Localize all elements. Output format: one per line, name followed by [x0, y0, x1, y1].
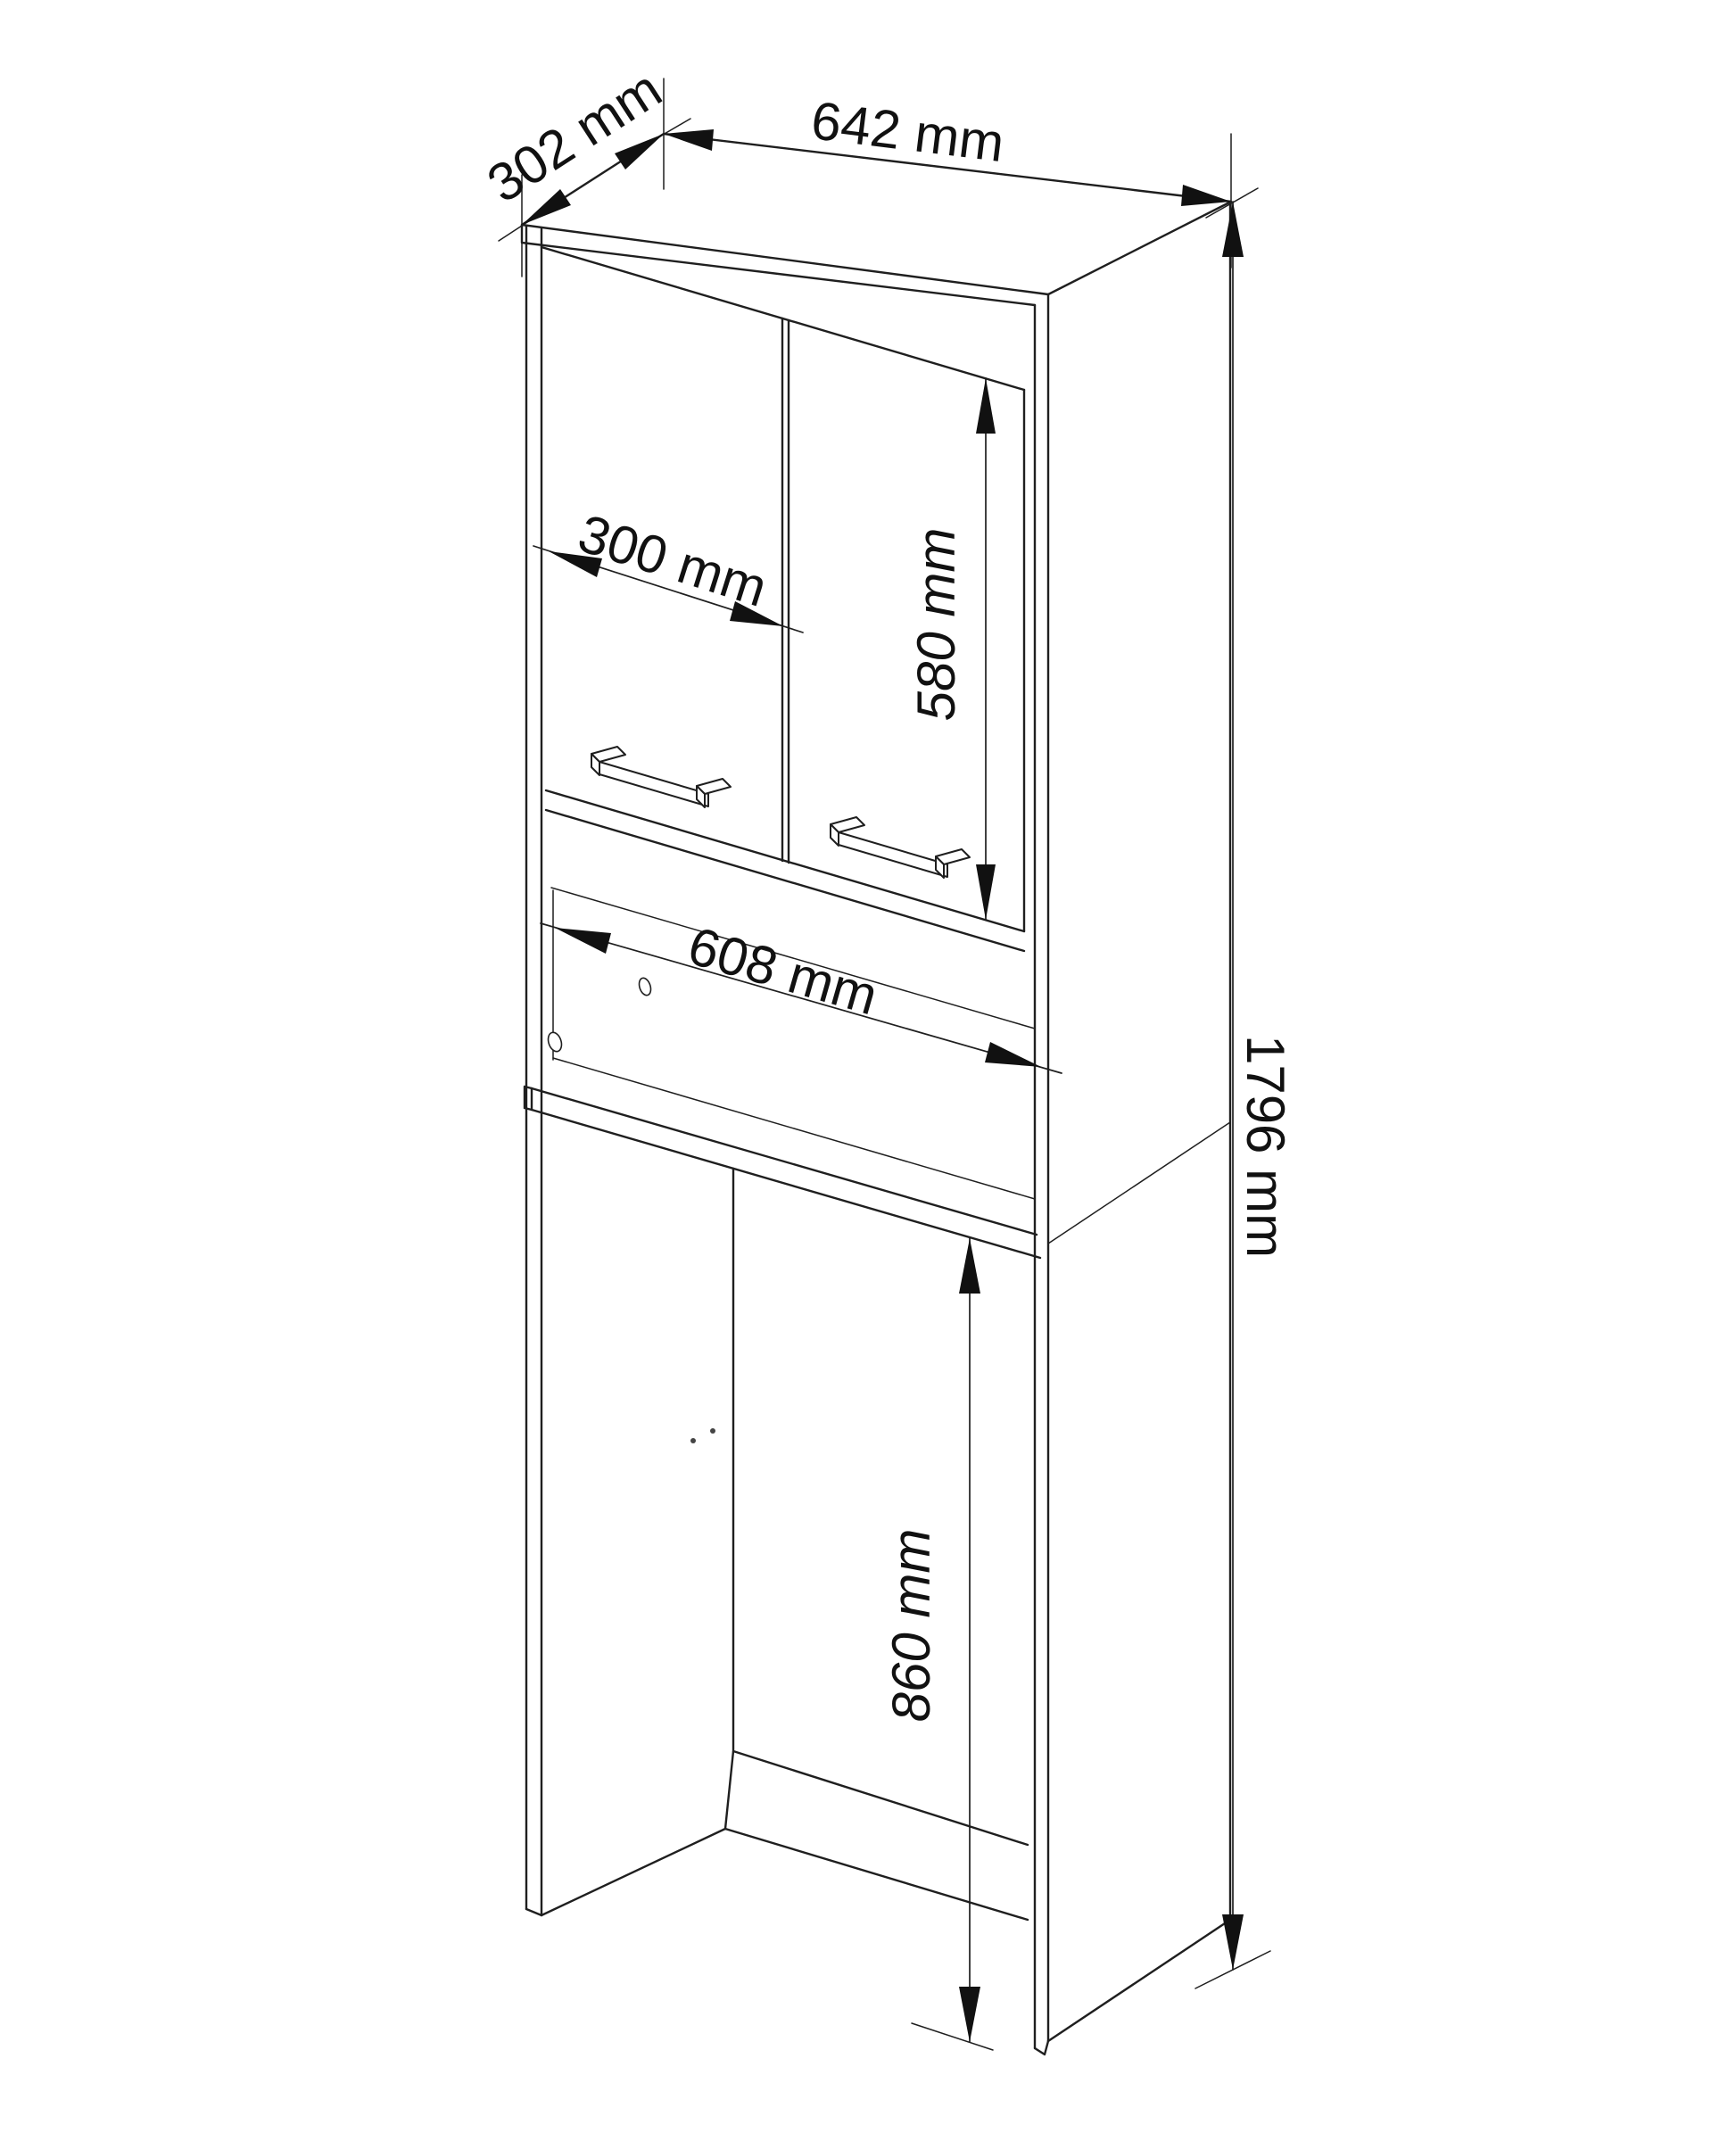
ext-tick-floor — [912, 2023, 993, 2050]
arrowhead-1796-top — [1222, 202, 1244, 257]
arrowhead-860-top — [959, 1238, 980, 1294]
side-face-shelf-joint — [1048, 1122, 1230, 1244]
right-door-handle — [831, 817, 970, 878]
niche-floor-left-cap — [525, 1087, 532, 1110]
door-handles — [591, 747, 970, 878]
dim-label-door-width: 300 mm — [572, 503, 774, 618]
arrowhead-1796-bottom — [1222, 1914, 1244, 1970]
drawing-canvas: 302 mm 642 mm 300 mm 580 mm 608 mm 1796 — [0, 0, 1736, 2141]
dim-label-niche-width: 608 mm — [682, 915, 884, 1026]
dim-total-height: 1796 mm — [1195, 202, 1295, 1988]
arrowhead-642-right — [1181, 185, 1231, 206]
drill-dot-2 — [710, 1428, 715, 1434]
shelf-pin-hole-back — [637, 977, 653, 997]
dim-label-total-height: 1796 mm — [1236, 1035, 1295, 1258]
shelf-front-under-doors — [546, 810, 1024, 951]
technical-drawing: 302 mm 642 mm 300 mm 580 mm 608 mm 1796 — [0, 0, 1736, 2141]
plinth-top-edge — [733, 1751, 1028, 1845]
dim-label-top-width: 642 mm — [808, 90, 1007, 173]
arrowhead-580-bottom — [976, 864, 996, 920]
niche-floor-back-edge — [553, 1058, 1035, 1199]
plinth-bottom-edge — [725, 1829, 1028, 1920]
arrowhead-580-top — [976, 378, 996, 434]
shelf-pin-hole-front — [546, 1030, 564, 1053]
arrowhead-608-left — [555, 928, 611, 954]
plinth-left-edge — [725, 1751, 733, 1829]
right-panel-bottom-receding-edge — [1048, 1920, 1230, 2041]
right-panel-foot — [1035, 2041, 1048, 2054]
dim-top-width: 642 mm — [664, 90, 1258, 268]
niche-floor-band-bottom — [532, 1110, 1040, 1258]
left-panel-bottom-receding-edge — [541, 1829, 725, 1915]
arrowhead-642-left — [664, 129, 714, 151]
drill-dot-1 — [690, 1438, 696, 1443]
niche-floor-front-edge — [532, 1088, 1037, 1235]
dim-door-height: 580 mm — [906, 378, 996, 920]
left-panel-bottom-cap — [526, 1909, 541, 1915]
left-door-handle — [591, 747, 731, 807]
dim-label-washer-space-height: 860 mm — [881, 1529, 941, 1723]
dim-washer-space-height: 860 mm — [881, 1238, 993, 2050]
dim-door-width: 300 mm — [533, 503, 803, 632]
arrowhead-860-bottom — [959, 1987, 980, 2042]
arrowhead-608-right — [985, 1042, 1041, 1067]
cabinet-carcass — [522, 134, 1231, 2054]
dim-label-door-height: 580 mm — [906, 528, 966, 722]
